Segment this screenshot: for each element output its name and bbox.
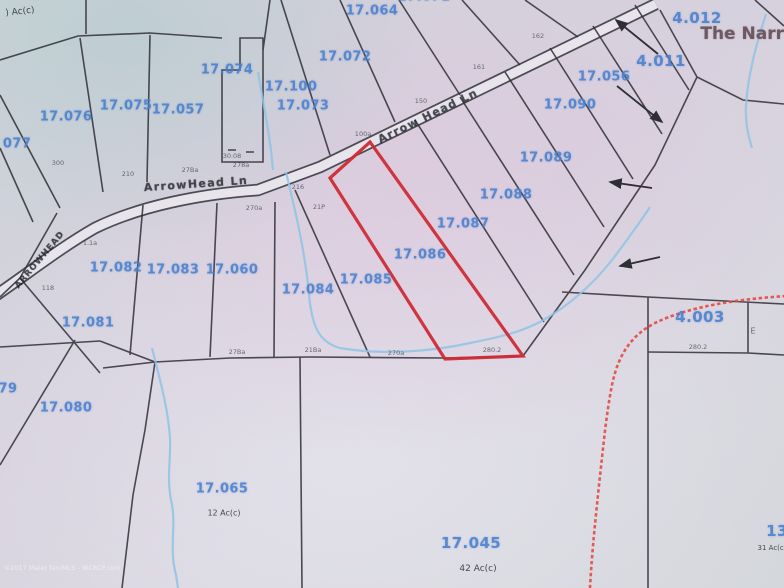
parcel-label: 17.088 — [480, 188, 533, 203]
parcel-label: 27Ba — [229, 348, 246, 356]
parcel-label: 118 — [42, 284, 54, 292]
parcel-label: 17.057 — [152, 103, 205, 118]
parcel-label: 17.060 — [206, 263, 259, 278]
parcel-label: 17.056 — [578, 70, 631, 85]
parcel-label: 17.084 — [282, 283, 335, 298]
parcel-label: 100a — [355, 130, 371, 138]
parcel-label: 21Ba — [305, 346, 322, 354]
parcel-label: 17.072 — [319, 50, 372, 65]
parcel-label: 21P — [313, 203, 325, 211]
parcel-label: 17.082 — [90, 261, 143, 276]
parcel-label: 278a — [233, 161, 249, 169]
parcel-label: 280.2 — [689, 343, 708, 351]
parcel-label: 270a — [388, 349, 404, 357]
parcel-boundaries — [0, 0, 784, 588]
parcel-label: 270a — [246, 204, 262, 212]
parcel-label: 17.074 — [201, 63, 254, 78]
parcel-label: 17.065 — [196, 482, 249, 497]
arrow-icon — [616, 20, 658, 54]
parcel-map-svg — [0, 0, 784, 588]
parcel-label: 42 Ac(c) — [459, 564, 496, 574]
parcel-label: 17.090 — [544, 98, 597, 113]
parcel-label: 17.071 — [398, 0, 451, 5]
parcel-label: 077 — [3, 137, 31, 152]
parcel-label: 17.085 — [340, 273, 393, 288]
parcel-label: 17.080 — [40, 401, 93, 416]
parcel-label: 17.089 — [520, 151, 573, 166]
parcel-label: 13 — [766, 522, 784, 540]
parcel-label: 17.081 — [62, 316, 115, 331]
parcel-label: 17.045 — [441, 534, 501, 552]
arrow-icon — [617, 86, 662, 122]
parcel-label: 27Ba — [182, 166, 199, 174]
map-photo: ) Ac(c)17.06417.07117.07217.07417.10017.… — [0, 0, 784, 588]
trail-dashed-line — [590, 296, 784, 588]
parcel-label: 79 — [0, 382, 17, 397]
parcel-label: 17.083 — [147, 263, 200, 278]
parcel-label: 12 Ac(c) — [207, 509, 240, 518]
parcel-label: 1.1a — [83, 239, 97, 247]
parcel-label: 4.011 — [636, 52, 685, 70]
parcel-label: 17.064 — [346, 4, 399, 19]
parcel-label: 17.075 — [100, 99, 153, 114]
parcel-label: 210 — [122, 170, 134, 178]
parcel-label: 150 — [415, 97, 427, 105]
parcel-label: 17.086 — [394, 248, 447, 263]
parcel-label: 161 — [473, 63, 485, 71]
arrow-icon — [620, 257, 660, 266]
parcel-label: E — [750, 327, 755, 336]
parcel-label: 4.003 — [675, 308, 724, 326]
parcel-label: 17.100 — [265, 80, 318, 95]
parcel-label: 300 — [52, 159, 64, 167]
parcel-label: 280.2 — [483, 346, 502, 354]
parcel-label: 17.073 — [277, 99, 330, 114]
parcel-label: The Narro — [700, 24, 784, 44]
parcel-label: 216 — [292, 183, 304, 191]
parcel-label: 31 Ac(c) — [758, 544, 784, 552]
watermark: ©2017 Maler fan/MLS - WCRCP.com — [4, 565, 121, 572]
parcel-label: 17.087 — [437, 217, 490, 232]
parcel-label: 30.08 — [223, 152, 242, 160]
parcel-label: 162 — [532, 32, 544, 40]
arrow-icon — [610, 182, 652, 188]
parcel-label: 17.076 — [40, 110, 93, 125]
